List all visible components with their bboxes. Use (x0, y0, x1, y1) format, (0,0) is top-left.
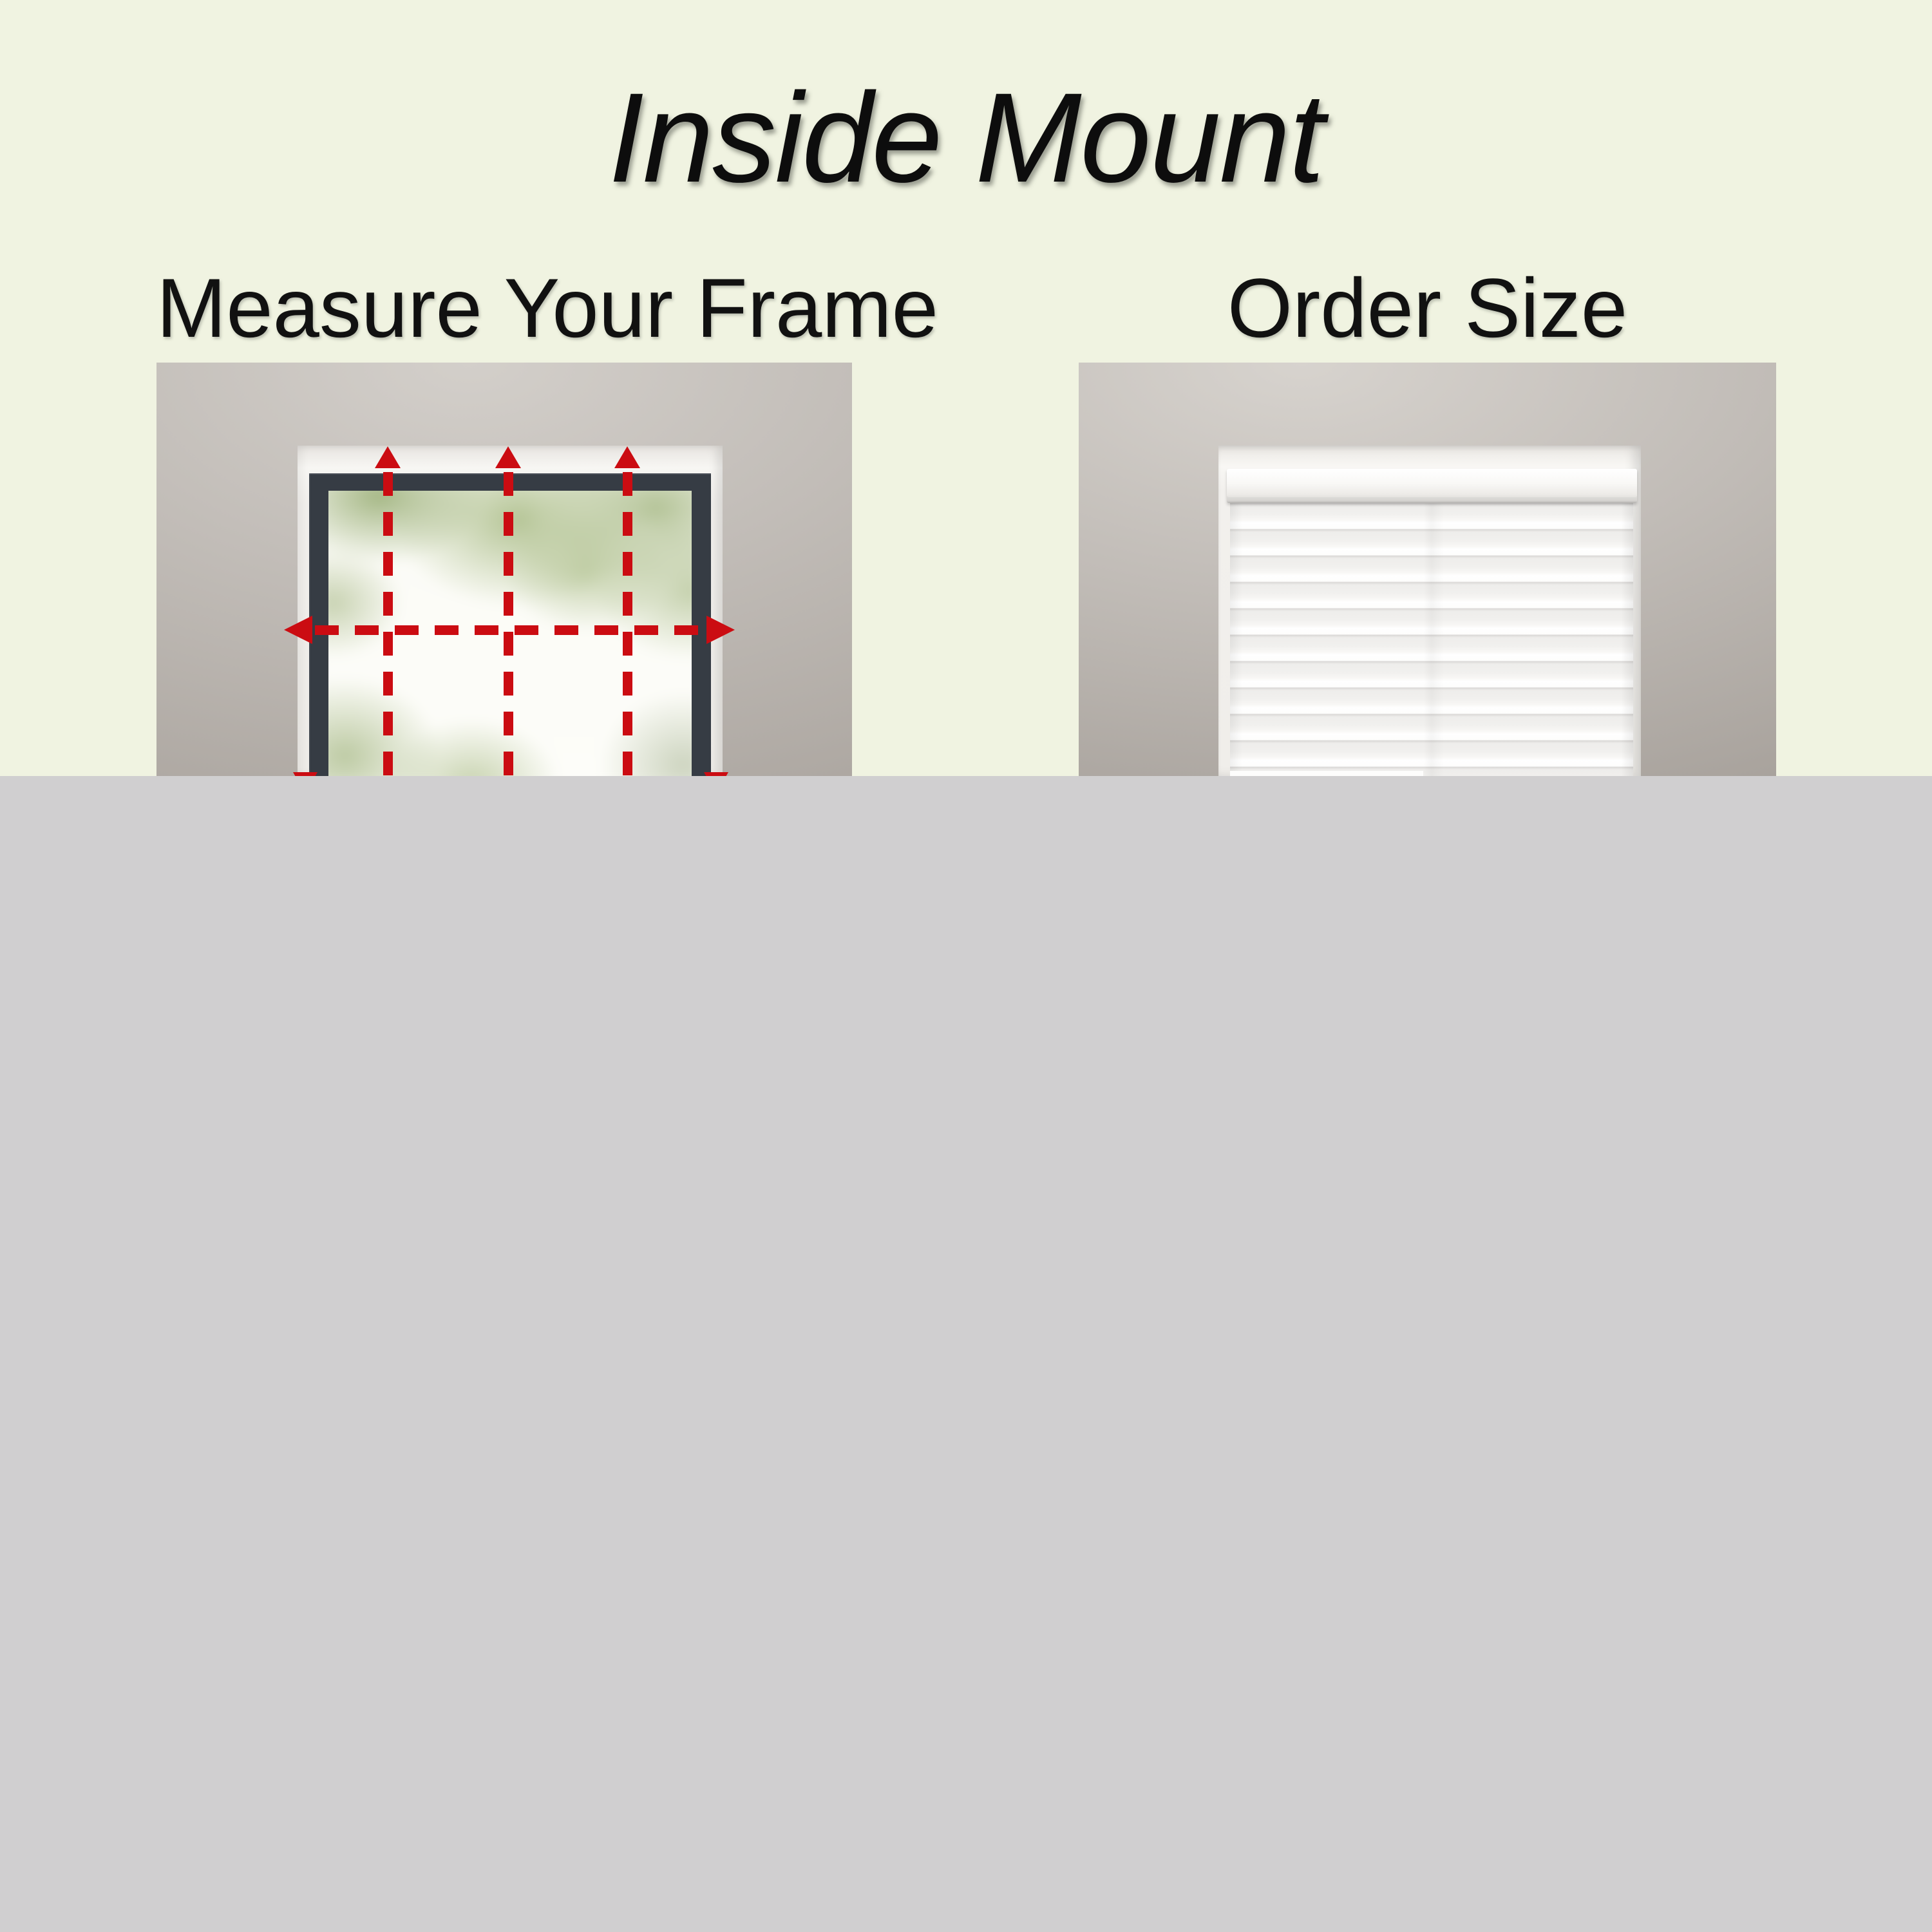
measure-width-dashed-line (315, 625, 706, 635)
measure-height-arrow-icon (495, 446, 521, 468)
measure-frame-photo (156, 363, 852, 776)
order-size-photo (1079, 363, 1776, 776)
zebra-blind (1230, 503, 1633, 776)
section-label-measure-your-frame: Measure Your Frame (156, 260, 852, 356)
measure-width-arrow-left-icon (284, 616, 312, 644)
page-title: Inside Mount (0, 64, 1932, 211)
measure-height-arrow-icon (614, 446, 640, 468)
section-label-order-size: Order Size (1079, 260, 1776, 356)
measure-height-dashed-line (623, 472, 632, 776)
measure-width-arrow-right-icon (706, 616, 735, 644)
measure-height-arrow-icon (375, 446, 401, 468)
measure-height-dashed-line (504, 472, 513, 776)
gray-overlay (0, 776, 1932, 1932)
blind-highlight (1230, 771, 1423, 776)
inside-mount-instruction-graphic: Inside Mount Measure Your Frame Order Si… (0, 0, 1932, 1932)
blind-headrail (1227, 469, 1637, 503)
measure-height-dashed-line (383, 472, 393, 776)
